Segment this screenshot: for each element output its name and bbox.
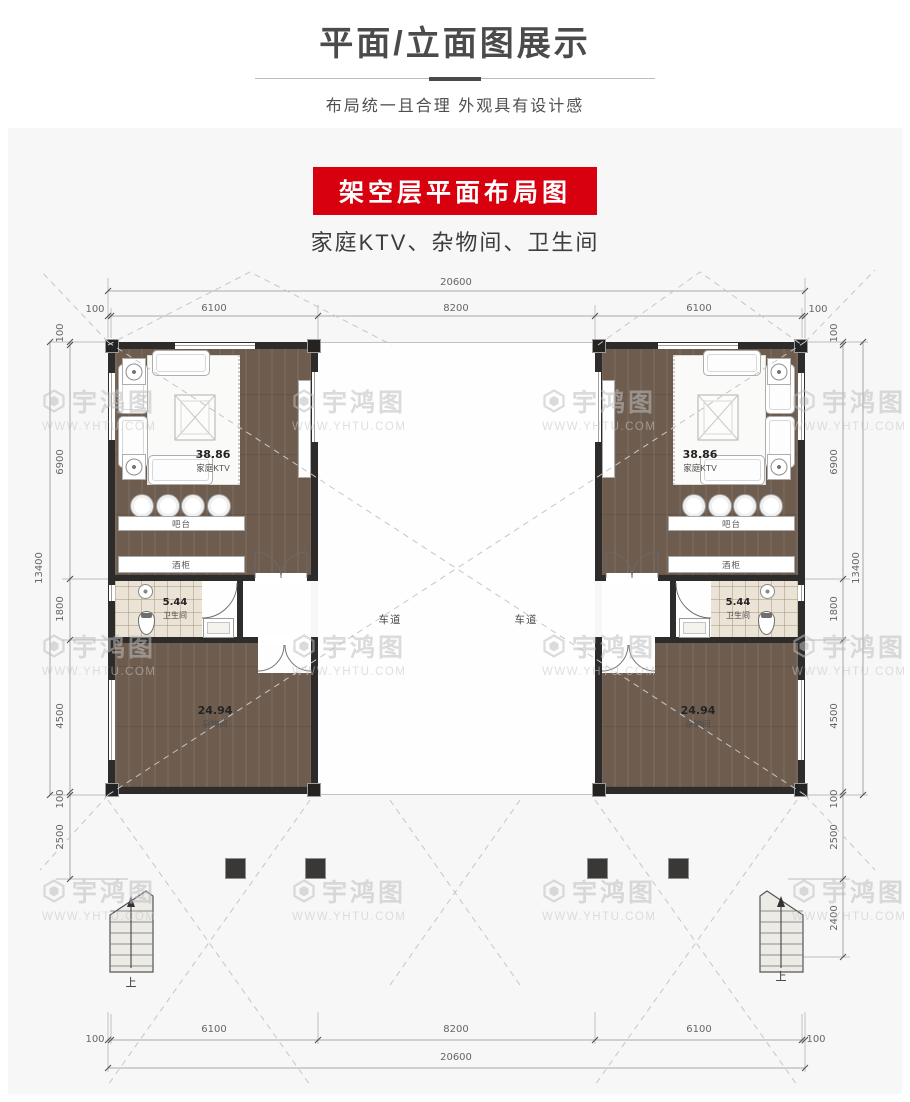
bar-stool	[181, 494, 205, 518]
sofa	[152, 350, 210, 376]
divider-accent	[429, 77, 481, 81]
wine-cabinet: 酒柜	[668, 556, 795, 573]
dim-left-porch: 2500	[55, 807, 67, 867]
bar-stool	[156, 494, 180, 518]
window	[799, 680, 805, 760]
wall	[108, 637, 258, 643]
storage-area: 24.94	[187, 704, 243, 717]
shower-tray-inner	[683, 622, 706, 634]
wall-bottom	[108, 787, 318, 794]
page-subtitle: 布局统一且合理 外观具有设计感	[0, 92, 910, 116]
dim-right-seg: 4500	[829, 686, 841, 746]
dim-right-stair: 2400	[829, 888, 841, 948]
wall	[658, 575, 805, 581]
dim-right-seg: 1800	[829, 579, 841, 639]
bar-counter-label: 吧台	[172, 518, 191, 530]
column	[305, 858, 326, 879]
floorplan-unit-left: 吧台 酒柜 38.86 家庭KTV 5.44 卫生间 24.94 杂物间	[108, 342, 318, 794]
wall-right	[311, 637, 318, 787]
window	[596, 372, 602, 442]
column	[592, 783, 606, 797]
dim-top-seg: 6100	[184, 303, 244, 315]
bar-stool	[733, 494, 757, 518]
bar-counter-label: 吧台	[722, 518, 741, 530]
bar-stool	[759, 494, 783, 518]
dim-left-seg: 100	[55, 303, 67, 363]
column	[794, 783, 808, 797]
bar-stool	[130, 494, 154, 518]
bar-stool	[207, 494, 231, 518]
column	[307, 783, 321, 797]
driveway-area	[318, 342, 595, 795]
window	[109, 373, 115, 440]
wine-cabinet-label: 酒柜	[722, 559, 741, 571]
dim-top-total: 20600	[426, 277, 486, 289]
bath-name: 卫生间	[153, 610, 197, 621]
dim-right-seg: 100	[829, 303, 841, 363]
dim-top-seg: 6100	[669, 303, 729, 315]
column	[105, 783, 119, 797]
dim-left-seg: 1800	[55, 579, 67, 639]
dim-bottom-seg: 100	[65, 1034, 125, 1046]
side-table	[122, 358, 146, 385]
side-table	[767, 358, 791, 385]
storage-door-zone	[602, 643, 655, 673]
bar-stool	[682, 494, 706, 518]
ktv-name: 家庭KTV	[185, 462, 241, 474]
storage-name: 杂物间	[670, 718, 726, 730]
page-header: 平面/立面图展示 布局统一且合理 外观具有设计感	[0, 0, 910, 116]
wall-right	[595, 637, 602, 787]
dim-right-total: 13400	[851, 538, 863, 598]
floorplan-unit-right: 吧台 酒柜 38.86 家庭KTV 5.44 卫生间 24.94 杂物间	[595, 342, 805, 794]
window	[175, 343, 255, 349]
dim-bottom-seg: 6100	[669, 1024, 729, 1036]
entry-zone	[602, 581, 670, 637]
title-divider	[255, 78, 655, 79]
bath-name: 卫生间	[716, 610, 760, 621]
wall	[670, 581, 676, 643]
column	[225, 858, 246, 879]
storage-name: 杂物间	[187, 718, 243, 730]
tv-cabinet	[602, 380, 615, 478]
driveway-label: 车道	[360, 612, 420, 627]
lamp	[771, 363, 788, 380]
lamp	[771, 459, 788, 476]
dim-bottom-seg: 8200	[426, 1024, 486, 1036]
bath-area: 5.44	[155, 597, 195, 608]
wine-cabinet-label: 酒柜	[172, 559, 191, 571]
entry-zone	[243, 581, 311, 637]
dim-left-seg: 4500	[55, 686, 67, 746]
dim-bottom-total: 20600	[426, 1052, 486, 1064]
column	[105, 339, 119, 353]
window	[799, 585, 805, 601]
window	[109, 680, 115, 760]
wall-bottom	[595, 787, 805, 794]
window	[109, 585, 115, 601]
lamp	[126, 363, 143, 380]
stair-up-label: 上	[773, 968, 789, 984]
dim-left-total: 13400	[34, 538, 46, 598]
storage-door-zone	[258, 643, 311, 673]
dim-right-porch: 2500	[829, 807, 841, 867]
lamp	[126, 459, 143, 476]
wine-cabinet: 酒柜	[118, 556, 245, 573]
side-table	[767, 454, 791, 480]
tv-cabinet	[298, 380, 311, 478]
ktv-area: 38.86	[185, 448, 241, 461]
sofa-seat	[707, 354, 757, 372]
stair-up-label: 上	[123, 974, 139, 990]
page: 平面/立面图展示 布局统一且合理 外观具有设计感 架空层平面布局图 家庭KTV、…	[0, 0, 910, 1102]
column	[794, 339, 808, 353]
storage-area: 24.94	[670, 704, 726, 717]
dim-bottom-seg: 100	[786, 1034, 846, 1046]
column	[668, 858, 689, 879]
side-table	[122, 454, 146, 480]
bar-stool	[708, 494, 732, 518]
bath-area: 5.44	[718, 597, 758, 608]
window	[312, 372, 318, 442]
shower-tray	[203, 618, 234, 638]
column	[592, 339, 606, 353]
dim-left-seg: 6900	[55, 432, 67, 492]
ktv-area: 38.86	[672, 448, 728, 461]
column	[307, 339, 321, 353]
dim-right-seg: 6900	[829, 432, 841, 492]
dim-bottom-seg: 6100	[184, 1024, 244, 1036]
column	[587, 858, 608, 879]
bar-counter: 吧台	[668, 516, 795, 531]
sink	[760, 584, 775, 599]
wall	[307, 575, 318, 581]
bar-counter: 吧台	[118, 516, 245, 531]
window	[658, 343, 738, 349]
wall	[237, 581, 243, 643]
wall	[595, 575, 606, 581]
dim-top-seg: 100	[65, 304, 125, 316]
driveway-label: 车道	[496, 612, 556, 627]
sink	[138, 584, 153, 599]
ktv-name: 家庭KTV	[672, 462, 728, 474]
shower-tray-inner	[207, 622, 230, 634]
wall	[655, 637, 805, 643]
sofa-seat	[156, 354, 206, 372]
page-title: 平面/立面图展示	[0, 16, 910, 65]
window	[799, 373, 805, 440]
wall	[108, 575, 255, 581]
dim-top-seg: 8200	[426, 303, 486, 315]
shower-tray	[679, 618, 710, 638]
sofa	[703, 350, 761, 376]
